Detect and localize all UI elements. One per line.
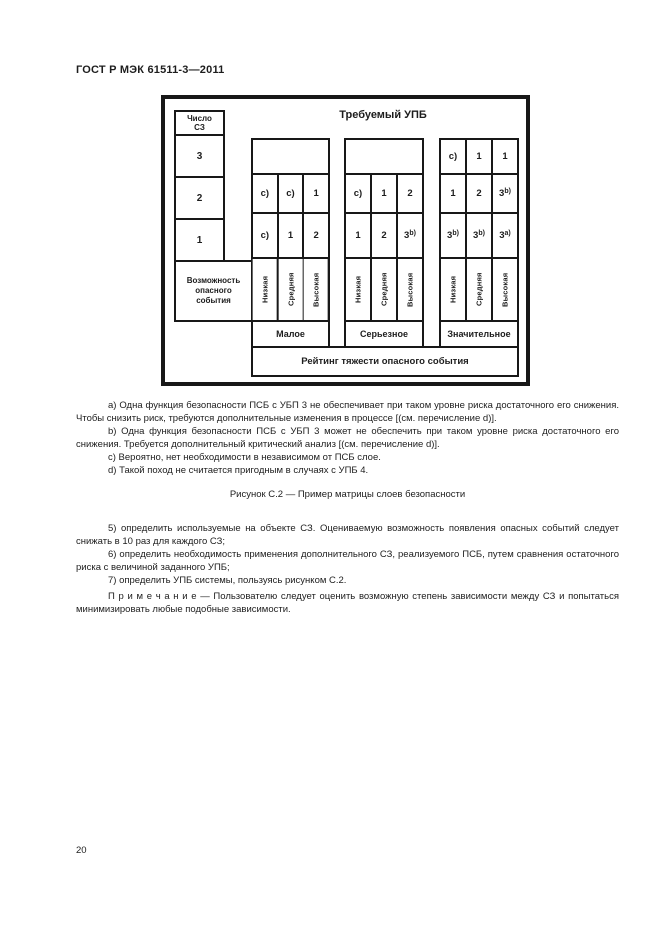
likelihood-label: Средняя: [372, 259, 396, 320]
matrix-group-serious: c)12123b)НизкаяСредняяВысокая: [344, 138, 424, 322]
list-item-7: 7) определить УПБ системы, пользуясь рис…: [76, 574, 619, 587]
figure-title: Требуемый УПБ: [249, 109, 517, 121]
likelihood-label: Средняя: [467, 259, 491, 320]
layer-count-cell: 2: [176, 178, 223, 218]
sil-value-cell: c): [279, 175, 303, 212]
likelihood-label: Низкая: [441, 259, 465, 320]
sil-value-cell: 2: [372, 214, 396, 257]
list-item-5: 5) определить используемые на объекте СЗ…: [76, 522, 619, 548]
document-page: ГОСТ Р МЭК 61511-3—2011 Требуемый УПБ Чи…: [0, 0, 661, 936]
likelihood-label: Высокая: [304, 259, 328, 320]
likelihood-label: Высокая: [493, 259, 517, 320]
severity-label-minor: Малое: [251, 320, 330, 348]
sil-value-cell: 3b): [467, 214, 491, 257]
footnote-a: a) Одна функция безопасности ПСБ с УБП 3…: [76, 399, 619, 425]
body-text-block: a) Одна функция безопасности ПСБ с УБП 3…: [76, 399, 619, 616]
sil-value-cell: 1: [279, 214, 303, 257]
sil-value-cell: c): [441, 140, 465, 173]
likelihood-label: Высокая: [398, 259, 422, 320]
sil-value-cell: 1: [493, 140, 517, 173]
footnote-c: c) Вероятно, нет необходимости в независ…: [76, 451, 619, 464]
safety-layer-matrix-figure: Требуемый УПБ Число СЗ 3 2 1 Возможность…: [161, 95, 530, 386]
sil-value-cell: 2: [467, 175, 491, 212]
sil-value-cell: 2: [304, 214, 328, 257]
empty-merged-cell: [253, 140, 328, 173]
sil-value-cell: 3b): [441, 214, 465, 257]
sil-value-cell: 1: [467, 140, 491, 173]
footnote-d: d) Такой поход не считается пригодным в …: [76, 464, 619, 477]
event-possibility-label: Возможность опасного события: [174, 260, 253, 322]
layer-count-column: Число СЗ 3 2 1: [174, 110, 225, 262]
matrix-group-minor: c)c)1c)12НизкаяСредняяВысокая: [251, 138, 330, 322]
sil-value-cell: 1: [441, 175, 465, 212]
likelihood-label: Низкая: [253, 259, 277, 320]
sil-value-cell: c): [253, 214, 277, 257]
footnote-b: b) Одна функция безопасности ПСБ с УБП 3…: [76, 425, 619, 451]
empty-merged-cell: [346, 140, 422, 173]
sil-value-cell: 1: [346, 214, 370, 257]
matrix-group-extensive: c)11123b)3b)3b)3a)НизкаяСредняяВысокая: [439, 138, 519, 322]
sil-value-cell: 3b): [398, 214, 422, 257]
likelihood-label: Средняя: [279, 259, 303, 320]
severity-label-serious: Серьезное: [344, 320, 424, 348]
page-number: 20: [76, 845, 87, 856]
sil-value-cell: 3b): [493, 175, 517, 212]
layer-count-cell: 1: [176, 220, 223, 260]
sil-value-cell: c): [253, 175, 277, 212]
sil-value-cell: c): [346, 175, 370, 212]
sil-value-cell: 3a): [493, 214, 517, 257]
severity-label-extensive: Значительное: [439, 320, 519, 348]
layer-count-header: Число СЗ: [176, 112, 223, 134]
layer-count-cell: 3: [176, 136, 223, 176]
likelihood-label: Низкая: [346, 259, 370, 320]
document-header: ГОСТ Р МЭК 61511-3—2011: [76, 64, 224, 76]
sil-value-cell: 1: [372, 175, 396, 212]
figure-caption: Рисунок С.2 — Пример матрицы слоев безоп…: [76, 488, 619, 501]
list-item-6: 6) определить необходимость применения д…: [76, 548, 619, 574]
sil-value-cell: 2: [398, 175, 422, 212]
note-paragraph: П р и м е ч а н и е — Пользователю следу…: [76, 590, 619, 616]
sil-value-cell: 1: [304, 175, 328, 212]
severity-rating-label: Рейтинг тяжести опасного события: [251, 346, 519, 377]
